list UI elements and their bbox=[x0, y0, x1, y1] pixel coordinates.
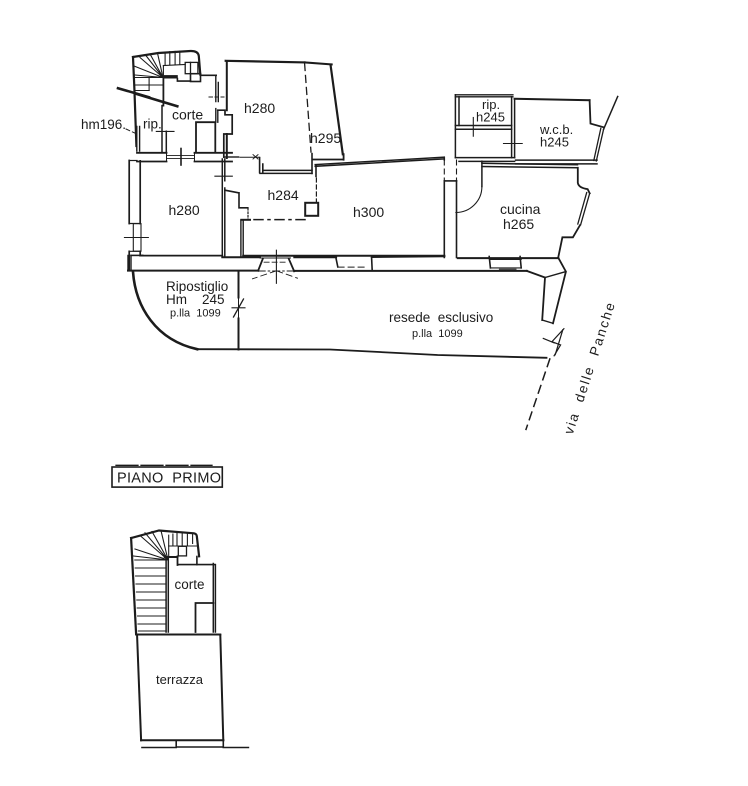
svg-text:h280: h280 bbox=[169, 202, 200, 218]
svg-text:corte: corte bbox=[175, 577, 205, 592]
svg-text:corte: corte bbox=[172, 107, 203, 123]
svg-text:resede esclusivo: resede esclusivo bbox=[389, 310, 493, 325]
svg-text:p.lla 1099: p.lla 1099 bbox=[412, 328, 463, 340]
svg-text:h245: h245 bbox=[476, 110, 505, 125]
svg-text:h245: h245 bbox=[540, 135, 569, 150]
svg-text:Hm 245: Hm 245 bbox=[166, 292, 225, 307]
svg-text:h265: h265 bbox=[503, 216, 534, 232]
svg-text:PIANO PRIMO: PIANO PRIMO bbox=[117, 471, 221, 487]
svg-text:p.lla 1099: p.lla 1099 bbox=[170, 308, 221, 320]
svg-text:rip.: rip. bbox=[143, 117, 162, 132]
svg-text:h300: h300 bbox=[353, 204, 384, 220]
svg-text:h284: h284 bbox=[268, 187, 299, 203]
svg-text:h295: h295 bbox=[310, 130, 341, 146]
svg-text:via delle Panche: via delle Panche bbox=[561, 299, 618, 436]
svg-text:h280: h280 bbox=[244, 100, 275, 116]
svg-text:cucina: cucina bbox=[500, 201, 541, 217]
svg-text:terrazza: terrazza bbox=[156, 672, 204, 687]
svg-text:hm196.: hm196. bbox=[81, 117, 126, 132]
